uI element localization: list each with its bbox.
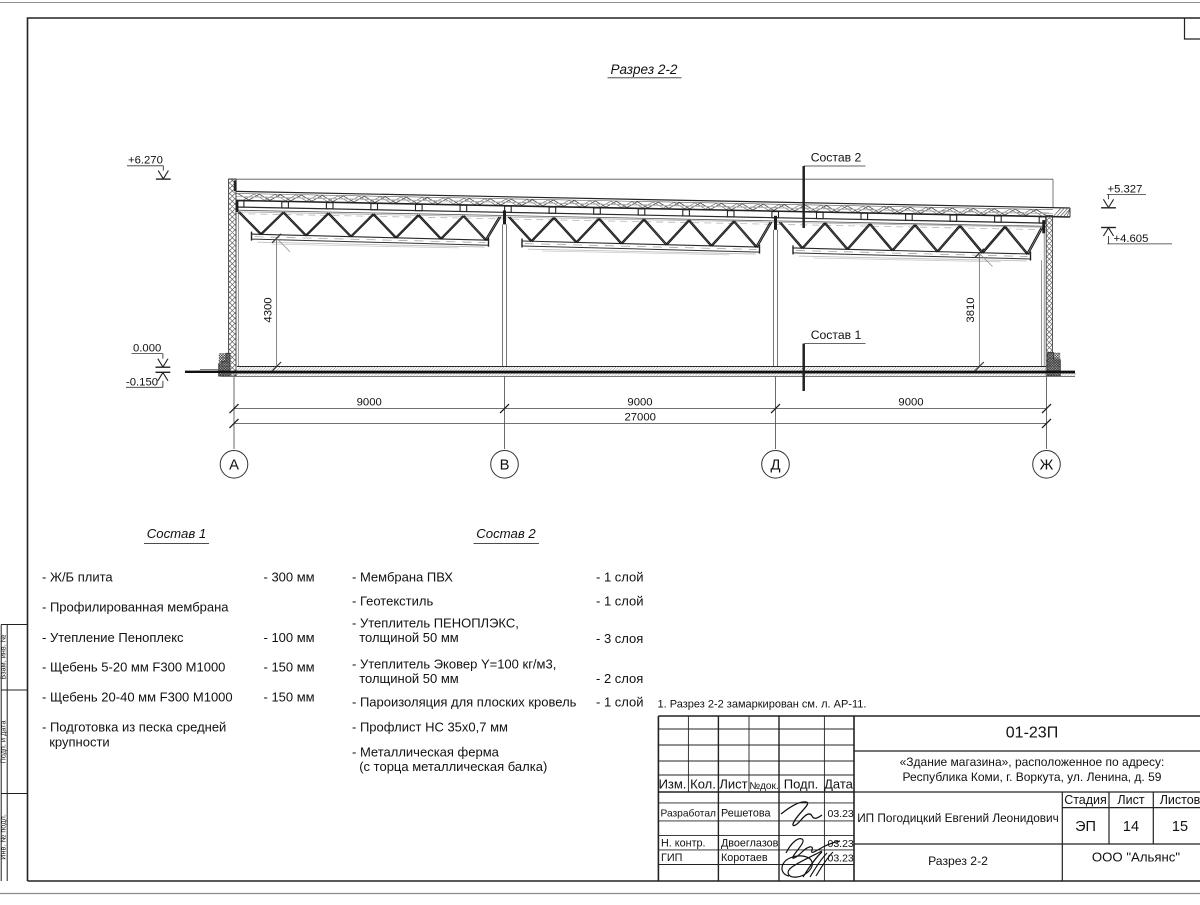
svg-text:ГИП: ГИП <box>661 852 682 864</box>
svg-text:Разрез 2-2: Разрез 2-2 <box>611 62 678 77</box>
svg-text:3810: 3810 <box>965 297 977 322</box>
svg-text:(с торца металлическая балка): (с торца металлическая балка) <box>352 759 547 774</box>
svg-text:крупности: крупности <box>42 735 110 750</box>
svg-text:27000: 27000 <box>624 411 655 423</box>
svg-text:Состав 1: Состав 1 <box>147 526 207 541</box>
svg-text:- Утепление Пеноплекс: - Утепление Пеноплекс <box>42 630 184 645</box>
svg-text:Состав 2: Состав 2 <box>476 526 536 541</box>
svg-text:№док.: №док. <box>749 781 778 792</box>
svg-text:1. Разрез 2-2 замаркирован см.: 1. Разрез 2-2 замаркирован см. л. АР-11. <box>658 699 867 711</box>
svg-text:-0.150: -0.150 <box>126 376 158 388</box>
svg-text:- Пароизоляция для плоских кро: - Пароизоляция для плоских кровель <box>352 695 577 710</box>
svg-text:- Мембрана ПВХ: - Мембрана ПВХ <box>352 570 453 585</box>
svg-text:9000: 9000 <box>357 397 382 409</box>
svg-text:Двоеглазов: Двоеглазов <box>721 837 779 849</box>
svg-text:- Профилированная мембрана: - Профилированная мембрана <box>42 600 229 615</box>
svg-text:толщиной 50 мм: толщиной 50 мм <box>352 630 459 645</box>
svg-text:- 3 слоя: - 3 слоя <box>596 631 643 646</box>
svg-text:14: 14 <box>1123 819 1139 835</box>
svg-text:«Здание магазина», расположенн: «Здание магазина», расположенное по адре… <box>900 755 1165 769</box>
svg-text:+5.327: +5.327 <box>1108 183 1143 195</box>
svg-text:Стадия: Стадия <box>1064 793 1107 807</box>
svg-text:- 150 мм: - 150 мм <box>264 660 315 675</box>
svg-text:Республика Коми, г. Воркута, у: Республика Коми, г. Воркута, ул. Ленина,… <box>903 770 1162 784</box>
svg-text:Изм.: Изм. <box>659 777 687 792</box>
svg-text:ООО "Альянс": ООО "Альянс" <box>1092 850 1180 865</box>
svg-text:Д: Д <box>770 458 780 474</box>
svg-text:- 1 слой: - 1 слой <box>596 570 644 585</box>
svg-text:А: А <box>229 458 239 474</box>
svg-text:9000: 9000 <box>627 397 652 409</box>
svg-text:9000: 9000 <box>898 397 923 409</box>
svg-text:Лист: Лист <box>719 777 747 792</box>
svg-text:- 2 слоя: - 2 слоя <box>596 671 643 686</box>
svg-text:Лист: Лист <box>1117 793 1144 807</box>
svg-text:- Утеплитель ПЕНОПЛЭКС,: - Утеплитель ПЕНОПЛЭКС, <box>352 616 519 631</box>
svg-text:Дата: Дата <box>824 777 854 792</box>
svg-text:03.23: 03.23 <box>828 808 854 820</box>
svg-text:ИП Погодицкий Евгений Леонидов: ИП Погодицкий Евгений Леонидович <box>857 811 1059 825</box>
svg-text:толщиной 50 мм: толщиной 50 мм <box>352 671 459 686</box>
svg-text:Подп. и дата: Подп. и дата <box>0 720 8 764</box>
svg-text:Ж: Ж <box>1040 458 1054 474</box>
svg-text:Коротаев: Коротаев <box>721 852 768 864</box>
svg-text:- 1 слой: - 1 слой <box>596 695 644 710</box>
svg-text:4300: 4300 <box>263 297 275 322</box>
svg-text:Инв. № подл.: Инв. № подл. <box>0 814 8 859</box>
svg-text:ЭП: ЭП <box>1075 819 1096 835</box>
svg-text:Листов: Листов <box>1160 793 1200 807</box>
svg-text:Разработал: Разработал <box>661 808 717 820</box>
svg-text:+6.270: +6.270 <box>128 154 163 166</box>
svg-text:- Геотекстиль: - Геотекстиль <box>352 594 433 609</box>
svg-text:Подп.: Подп. <box>784 777 819 792</box>
svg-text:- Металлическая ферма: - Металлическая ферма <box>352 745 500 760</box>
svg-text:0.000: 0.000 <box>133 342 161 354</box>
svg-text:01-23П: 01-23П <box>1006 725 1058 742</box>
svg-text:- 100 мм: - 100 мм <box>264 630 315 645</box>
svg-text:Взам. инв. №: Взам. инв. № <box>0 634 8 679</box>
svg-text:В: В <box>500 458 510 474</box>
svg-text:- Профлист НС 35х0,7 мм: - Профлист НС 35х0,7 мм <box>352 720 508 735</box>
svg-text:- 150 мм: - 150 мм <box>264 690 315 705</box>
svg-text:- Щебень 20-40 мм F300 М1000: - Щебень 20-40 мм F300 М1000 <box>42 690 233 705</box>
svg-text:Кол.: Кол. <box>690 777 716 792</box>
svg-text:- Ж/Б плита: - Ж/Б плита <box>42 570 113 585</box>
svg-text:- Подготовка из песка средней: - Подготовка из песка средней <box>42 720 226 735</box>
svg-text:Н. контр.: Н. контр. <box>661 837 706 849</box>
svg-text:Разрез 2-2: Разрез 2-2 <box>928 854 988 868</box>
svg-text:- 300 мм: - 300 мм <box>264 570 315 585</box>
svg-text:Решетова: Решетова <box>721 808 771 820</box>
svg-text:+4.605: +4.605 <box>1114 233 1149 245</box>
svg-text:15: 15 <box>1172 819 1188 835</box>
svg-text:- 1 слой: - 1 слой <box>596 594 644 609</box>
svg-text:Состав 2: Состав 2 <box>811 151 862 165</box>
svg-text:- Щебень 5-20 мм F300 М1000: - Щебень 5-20 мм F300 М1000 <box>42 660 225 675</box>
svg-text:- Утеплитель Эковер Y=100 кг/м: - Утеплитель Эковер Y=100 кг/м3, <box>352 657 556 672</box>
svg-text:Состав 1: Состав 1 <box>811 328 862 342</box>
